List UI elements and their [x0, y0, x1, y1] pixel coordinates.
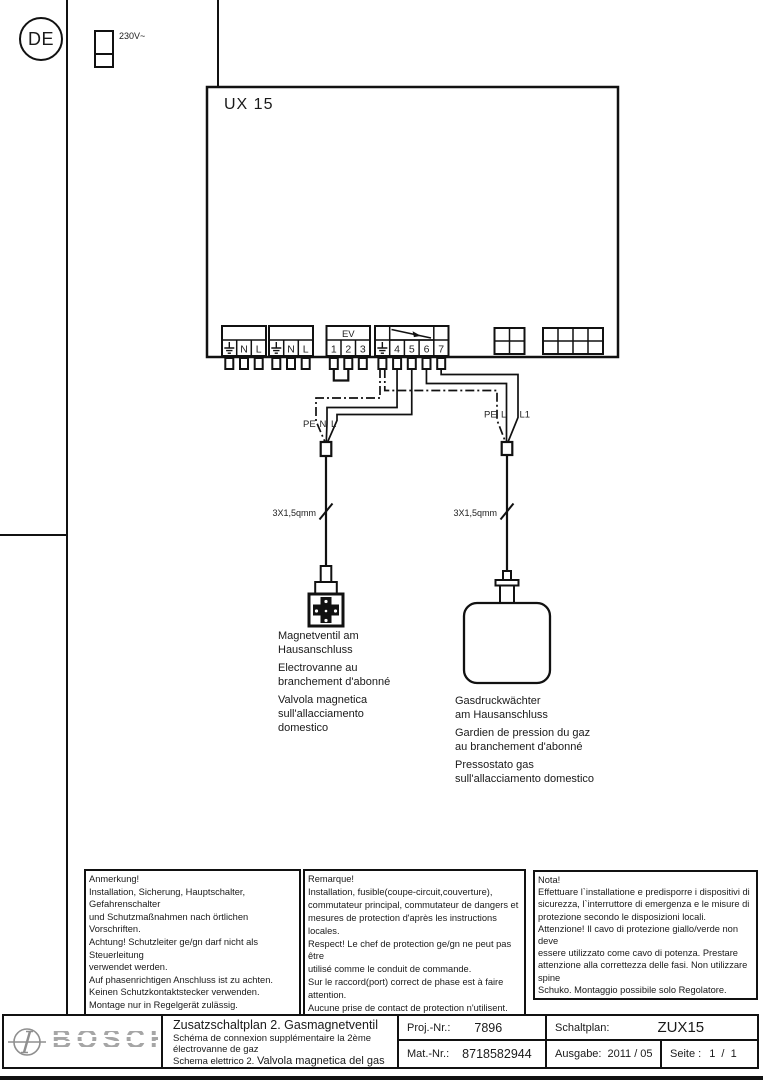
connector-left-l: L	[331, 419, 336, 430]
note-box-german: Anmerkung!Installation, Sicherung, Haupt…	[84, 869, 301, 1016]
title-block-fields: Proj.-Nr.: 7896 Schaltplan: ZUX15 Mat.-N…	[397, 1016, 759, 1067]
brand-cell: BOSCH	[4, 1016, 161, 1067]
drawing-title-cell: Zusatzschaltplan 2. Gasmagnetventil Sché…	[161, 1016, 409, 1067]
cable-connector-right	[502, 442, 513, 455]
connector-right-pe: PE	[484, 410, 497, 421]
wire-l-right	[426, 369, 506, 442]
terminal-label: 7	[438, 344, 444, 356]
project-number-value: 7896	[474, 1021, 502, 1035]
project-number-cell: Proj.-Nr.: 7896	[399, 1016, 545, 1039]
page-bottom-edge	[0, 1076, 763, 1080]
wire-pe-right	[385, 369, 506, 442]
spare-terminal-block-b	[543, 328, 603, 354]
drawing-title-it: Schema elettrico 2. Valvola magnetica de…	[173, 1055, 405, 1068]
valve-caption-it: Valvola magneticasull'allacciamentodomes…	[278, 693, 428, 735]
voltage-label: 230V~	[119, 31, 145, 41]
connector-right-l1: L1	[520, 410, 531, 421]
terminal-label: 6	[424, 344, 430, 356]
terminal-label: 1	[331, 344, 337, 356]
device-name: UX 15	[224, 96, 273, 114]
earth-icon	[377, 342, 387, 353]
pressure-caption-de: Gasdruckwächteram Hausanschluss	[455, 694, 645, 722]
drawing-title-fr1: Schéma de connexion supplémentaire la 2è…	[173, 1033, 405, 1044]
terminal-label: 3	[360, 344, 366, 356]
sheet-number-cell: Seite : 1 / 1	[660, 1041, 759, 1067]
plan-number-value: ZUX15	[657, 1019, 704, 1036]
title-block: BOSCH Zusatzschaltplan 2. Gasmagnetventi…	[2, 1014, 759, 1069]
note-box-french: Remarque!Installation, fusible(coupe-cir…	[303, 869, 526, 1032]
valve-caption: Magnetventil amHausanschluss Electrovann…	[278, 629, 428, 739]
terminal-label: L	[303, 344, 309, 356]
cable-spec-left: 3X1,5qmm	[272, 508, 316, 518]
schematic-page: N L N L 1 2 3 4 5 6 7 EV PE N L PE L L1 …	[0, 0, 763, 1080]
earth-icon	[271, 342, 281, 353]
connector-left-pe: PE	[303, 419, 316, 430]
spare-terminal-block-a	[495, 328, 525, 354]
terminal-label: N	[287, 344, 295, 356]
issue-date-cell: Ausgabe: 2011 / 05	[545, 1041, 660, 1067]
cable-spec-right: 3X1,5qmm	[453, 508, 497, 518]
valve-plug-symbol	[309, 566, 343, 626]
ux15-box	[207, 87, 618, 357]
pressure-caption: Gasdruckwächteram Hausanschluss Gardien …	[455, 694, 645, 790]
issue-date-value: 2011 / 05	[607, 1048, 652, 1060]
bosch-logo-icon	[8, 1025, 46, 1059]
earth-icon	[224, 342, 234, 353]
pressure-caption-it: Pressostato gassull'allacciamento domest…	[455, 758, 645, 786]
connector-right-l: L	[501, 410, 506, 421]
material-number-value: 8718582944	[462, 1047, 532, 1061]
terminal-label: N	[240, 344, 248, 356]
ev-jumper	[334, 369, 349, 381]
connector-left-n: N	[320, 419, 327, 430]
pressure-switch-symbol	[464, 571, 550, 683]
terminal-label: 5	[409, 344, 415, 356]
cable-connector-left	[321, 442, 332, 456]
pressure-caption-fr: Gardien de pression du gazau branchement…	[455, 726, 645, 754]
plan-number-cell: Schaltplan: ZUX15	[545, 1016, 759, 1039]
drawing-title-fr2: électrovanne de gaz	[173, 1044, 405, 1055]
note-box-italian: Nota!Effettuare l`installatione e predis…	[533, 870, 758, 1000]
valve-caption-de: Magnetventil amHausanschluss	[278, 629, 428, 657]
terminal-label: 4	[394, 344, 400, 356]
terminal-label: L	[256, 344, 262, 356]
ev-block-title: EV	[342, 329, 355, 340]
valve-caption-fr: Electrovanne aubranchement d'abonné	[278, 661, 428, 689]
sheet-number-value: 1 / 1	[709, 1048, 737, 1060]
material-number-cell: Mat.-Nr.: 8718582944	[399, 1041, 545, 1067]
terminal-label: 2	[345, 344, 351, 356]
country-badge: DE	[19, 17, 63, 61]
fuse-icon	[95, 31, 113, 54]
drawing-title-de: Zusatzschaltplan 2. Gasmagnetventil	[173, 1018, 405, 1033]
